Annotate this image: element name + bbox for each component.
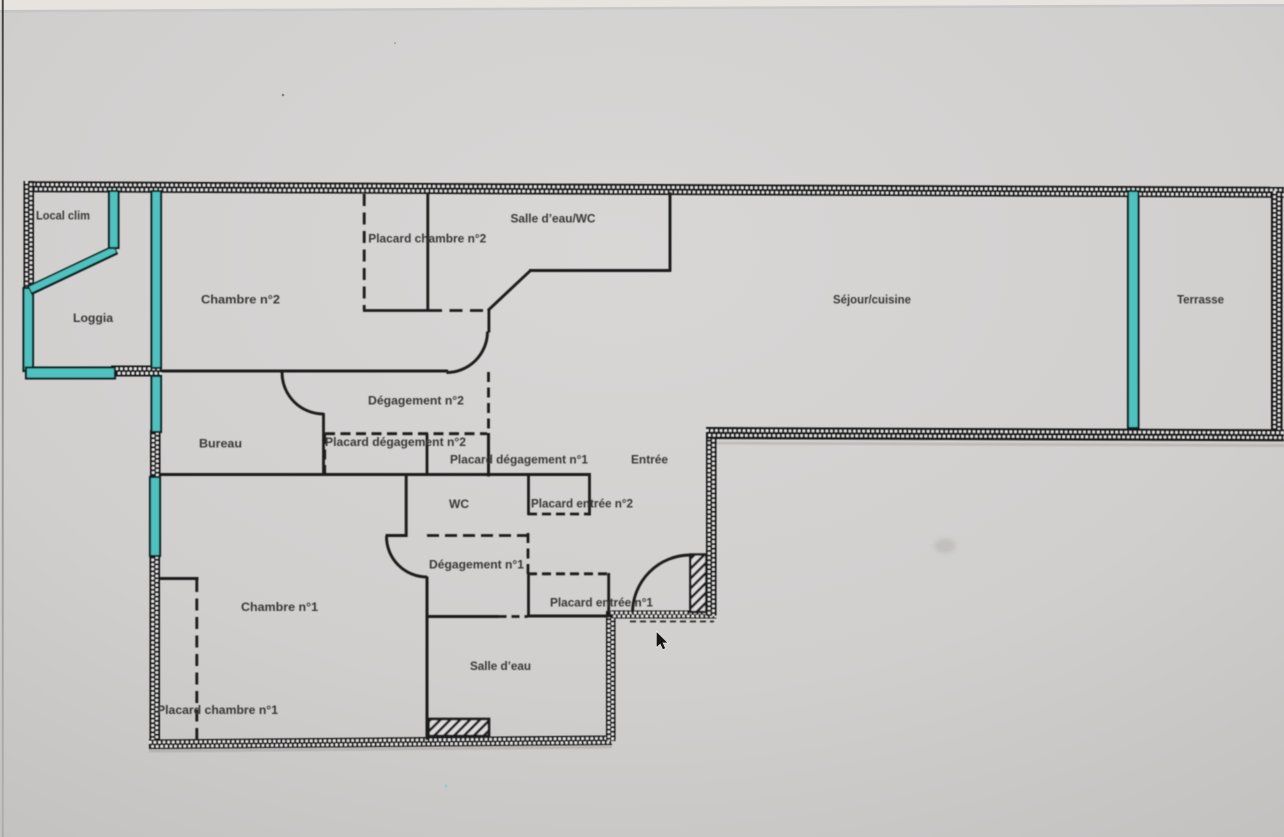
svg-text:Placard entrée n°1: Placard entrée n°1 — [550, 595, 653, 609]
svg-text:Placard chambre n°2: Placard chambre n°2 — [368, 231, 486, 245]
svg-text:Salle d’eau/WC: Salle d’eau/WC — [511, 211, 596, 225]
svg-text:Placard dégagement n°1: Placard dégagement n°1 — [450, 452, 588, 466]
svg-text:Dégagement n°2: Dégagement n°2 — [368, 393, 464, 407]
svg-text:Entrée: Entrée — [631, 452, 668, 466]
svg-text:Séjour/cuisine: Séjour/cuisine — [833, 292, 911, 306]
svg-text:Placard dégagement n°2: Placard dégagement n°2 — [325, 435, 466, 449]
svg-text:Chambre n°2: Chambre n°2 — [201, 292, 280, 306]
svg-text:WC: WC — [449, 497, 469, 511]
svg-text:Local clim: Local clim — [36, 208, 90, 222]
svg-text:Placard entrée n°2: Placard entrée n°2 — [531, 496, 633, 510]
svg-text:Bureau: Bureau — [199, 436, 242, 450]
svg-text:Salle d’eau: Salle d’eau — [470, 659, 531, 673]
svg-text:Placard chambre n°1: Placard chambre n°1 — [157, 703, 278, 717]
svg-text:Dégagement n°1: Dégagement n°1 — [429, 557, 524, 571]
svg-text:Terrasse: Terrasse — [1177, 292, 1224, 306]
svg-text:Loggia: Loggia — [73, 311, 113, 325]
svg-text:Chambre n°1: Chambre n°1 — [241, 600, 318, 614]
